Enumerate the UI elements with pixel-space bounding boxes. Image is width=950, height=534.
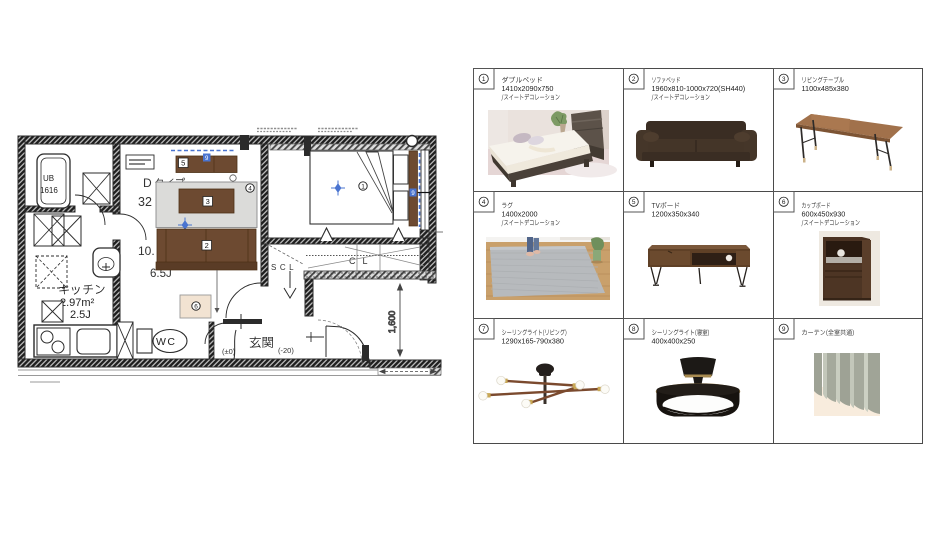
svg-text:6: 6: [194, 303, 198, 310]
svg-text:5: 5: [181, 158, 185, 167]
svg-text:32: 32: [138, 195, 152, 209]
svg-text:3: 3: [782, 76, 786, 83]
svg-text:9: 9: [782, 326, 786, 333]
svg-text:10.: 10.: [138, 244, 155, 258]
svg-text:CL: CL: [349, 256, 375, 266]
svg-text:400x400x250: 400x400x250: [652, 337, 696, 346]
svg-text:5: 5: [632, 199, 636, 206]
svg-text:6: 6: [782, 199, 786, 206]
svg-text:600x450x930: 600x450x930: [802, 210, 846, 219]
svg-text:4: 4: [248, 185, 252, 192]
svg-text:(-20): (-20): [278, 346, 294, 355]
svg-text:1400x2000: 1400x2000: [502, 210, 538, 219]
svg-text:1960x810-1000x720(SH440): 1960x810-1000x720(SH440): [652, 84, 746, 93]
svg-text:1: 1: [361, 183, 365, 190]
svg-text:2: 2: [632, 76, 636, 83]
svg-text:2.5J: 2.5J: [70, 309, 91, 321]
svg-text:1200x350x340: 1200x350x340: [652, 210, 700, 219]
svg-text:2.97m²: 2.97m²: [60, 297, 95, 309]
svg-text:1410x2090x750: 1410x2090x750: [502, 84, 554, 93]
svg-text:(±0): (±0): [222, 347, 236, 356]
svg-text:8: 8: [632, 326, 636, 333]
svg-text:3: 3: [206, 197, 210, 206]
svg-text:7: 7: [482, 326, 486, 333]
svg-text:UB: UB: [43, 174, 54, 183]
svg-text:1: 1: [482, 76, 486, 83]
svg-text:1616: 1616: [40, 186, 58, 195]
svg-text:4: 4: [482, 199, 486, 206]
svg-text:1,600: 1,600: [387, 311, 397, 334]
svg-text:1290x165-790x380: 1290x165-790x380: [502, 337, 564, 346]
svg-text:SCL: SCL: [271, 263, 297, 272]
svg-text:WC: WC: [156, 336, 177, 348]
svg-text:D: D: [143, 176, 152, 190]
svg-text:2: 2: [205, 241, 209, 250]
svg-text:1100x485x380: 1100x485x380: [802, 84, 849, 93]
